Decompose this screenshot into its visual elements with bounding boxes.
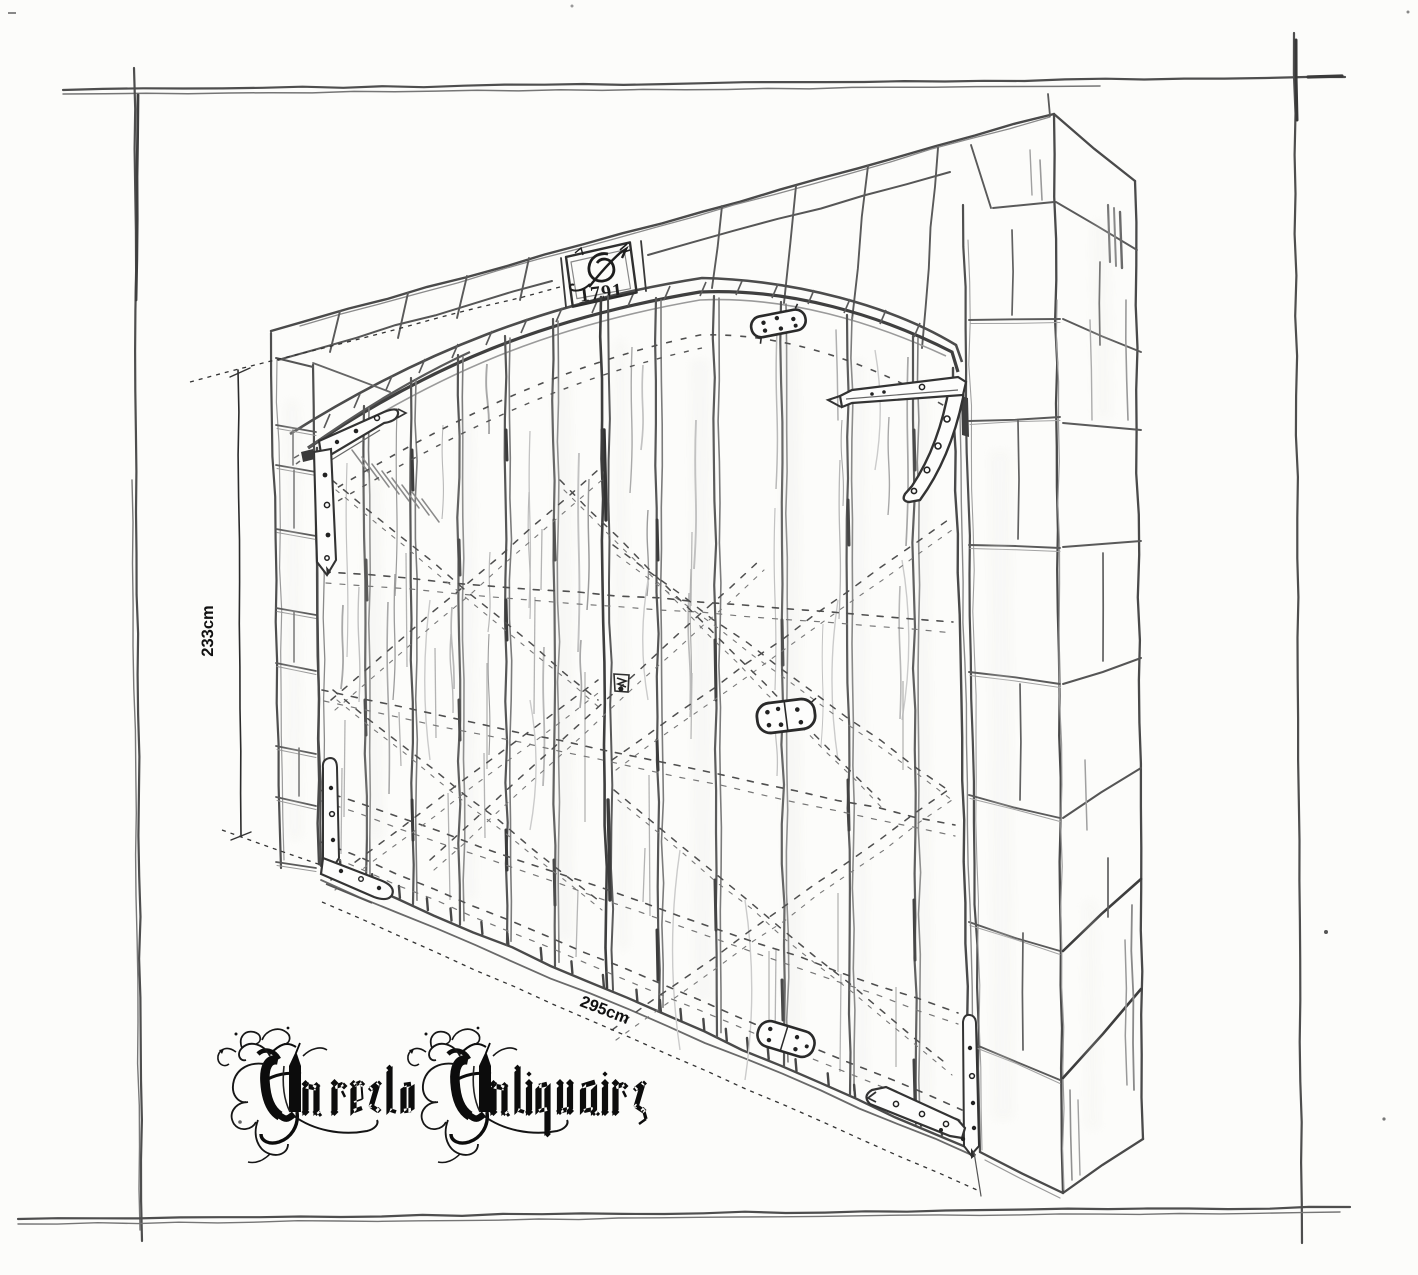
svg-text:295cm: 295cm (578, 993, 632, 1028)
svg-text:233cm: 233cm (199, 605, 217, 656)
